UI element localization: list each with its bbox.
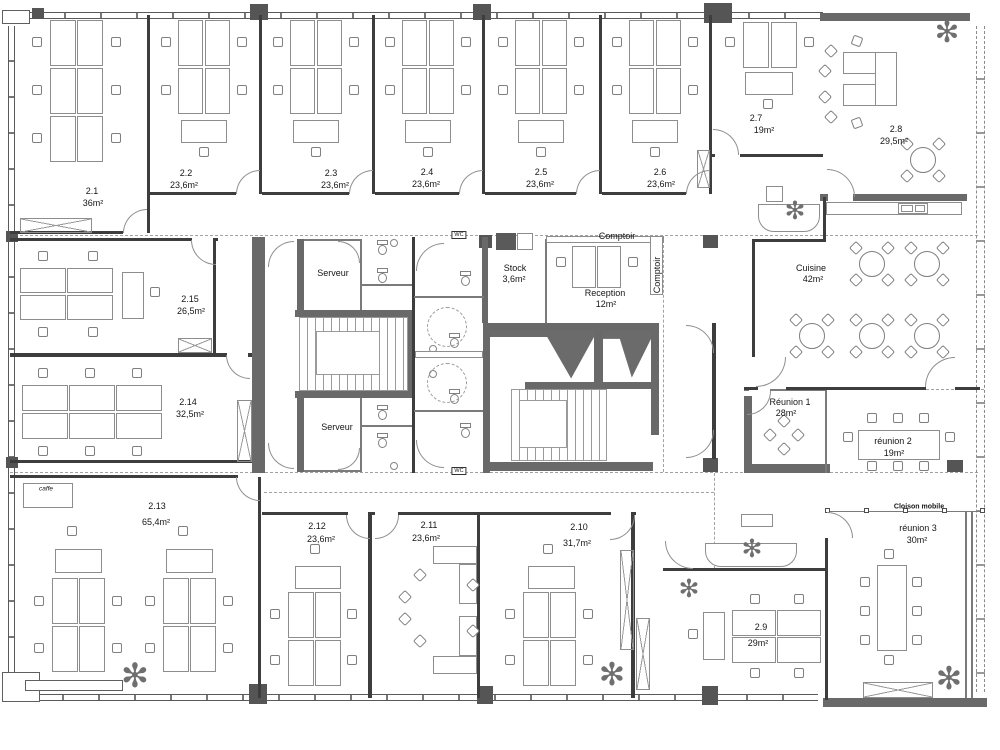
room-label-2-7: 2.7 [750,113,763,123]
room-label-reunion2: réunion 2 [874,436,912,446]
room-area-2-4: 23,6m² [412,179,440,189]
room-label-2-8: 2.8 [890,124,903,134]
room-area-reunion2: 19m² [884,448,905,458]
room-area-reception: 12m² [596,299,617,309]
room-label-serveur-bottom: Serveur [321,422,353,432]
room-label-2-5: 2.5 [535,167,548,177]
wc-label-bottom: WC [451,467,466,475]
room-label-2-13: 2.13 [148,501,166,511]
room-label-2-9: 2.9 [755,622,768,632]
room-label-2-10: 2.10 [570,522,588,532]
room-label-2-2: 2.2 [180,168,193,178]
comptoir-side-label: Comptoir [652,257,662,294]
room-area-stock: 3,6m² [502,274,525,284]
room-area-2-1: 36m² [83,198,104,208]
cloison-mobile-label: Cloison mobile [894,504,944,511]
room-label-2-4: 2.4 [421,167,434,177]
room-area-2-6: 23,6m² [647,179,675,189]
room-area-2-15: 26,5m² [177,306,205,316]
room-label-reunion1: Réunion 1 [769,397,810,407]
room-label-2-15: 2.15 [181,294,199,304]
room-area-reunion3: 30m² [907,535,928,545]
room-area-2-9: 29m² [748,638,769,648]
room-label-2-14: 2.14 [179,397,197,407]
room-area-reunion1: 28m² [776,408,797,418]
room-area-2-3: 23,6m² [321,180,349,190]
room-area-2-10: 31,7m² [563,538,591,548]
room-label-stock: Stock [504,263,527,273]
room-label-serveur-top: Serveur [317,268,349,278]
room-area-2-7: 19m² [754,125,775,135]
room-label-2-1: 2.1 [86,186,99,196]
room-label-2-11: 2.11 [421,520,438,530]
room-area-2-14: 32,5m² [176,409,204,419]
room-label-2-6: 2.6 [654,167,667,177]
room-area-2-12: 23,6m² [307,534,335,544]
room-label-reception: Reception [585,288,626,298]
room-label-2-3: 2.3 [325,168,338,178]
room-label-reunion3: réunion 3 [899,523,937,533]
comptoir-top-label: Comptoir [599,231,636,241]
room-area-2-5: 23,6m² [526,179,554,189]
room-area-2-13: 65,4m² [142,517,170,527]
plan-labels: 2.1 36m² 2.2 23,6m² 2.3 23,6m² 2.4 23,6m… [0,0,1000,750]
room-area-2-8: 29,5m² [880,136,908,146]
room-area-2-2: 23,6m² [170,180,198,190]
caffe-label: caffe [39,486,53,493]
room-label-cuisine: Cuisine [796,263,826,273]
room-label-2-12: 2.12 [308,521,326,531]
floor-plan: ✻✻✻✻✻✻✻ 2.1 36m² 2.2 23,6m² 2.3 23,6m² 2… [0,0,1000,750]
room-area-2-11: 23,6m² [412,533,440,543]
room-area-cuisine: 42m² [803,274,824,284]
wc-label-top: WC [451,231,466,239]
